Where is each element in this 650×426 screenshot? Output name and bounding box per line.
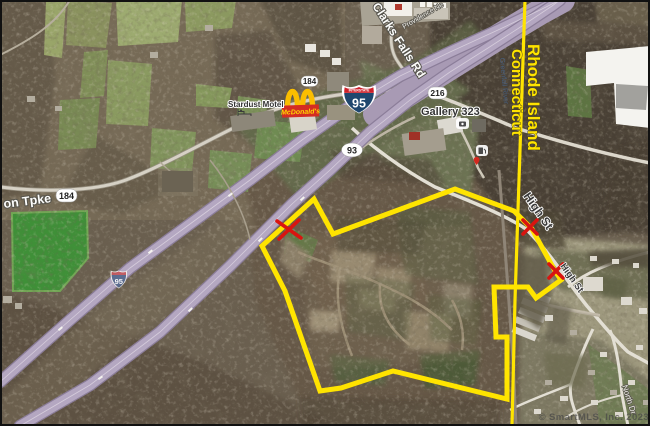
svg-text:McDonald's: McDonald's: [281, 108, 320, 116]
svg-text:© SmartMLS, Inc. 2023: © SmartMLS, Inc. 2023: [539, 412, 649, 423]
svg-text:184: 184: [59, 191, 74, 201]
svg-text:95: 95: [115, 277, 123, 286]
svg-text:Gallery 323: Gallery 323: [421, 106, 480, 118]
svg-text:Connecticut: Connecticut: [508, 49, 525, 136]
svg-text:Stardust Motel: Stardust Motel: [228, 100, 284, 109]
svg-text:184: 184: [303, 77, 317, 86]
svg-text:216: 216: [430, 88, 444, 98]
svg-text:Rhode Island: Rhode Island: [524, 44, 543, 151]
svg-text:95: 95: [352, 97, 366, 111]
svg-text:93: 93: [347, 146, 357, 156]
svg-text:INTERSTATE: INTERSTATE: [349, 89, 371, 93]
